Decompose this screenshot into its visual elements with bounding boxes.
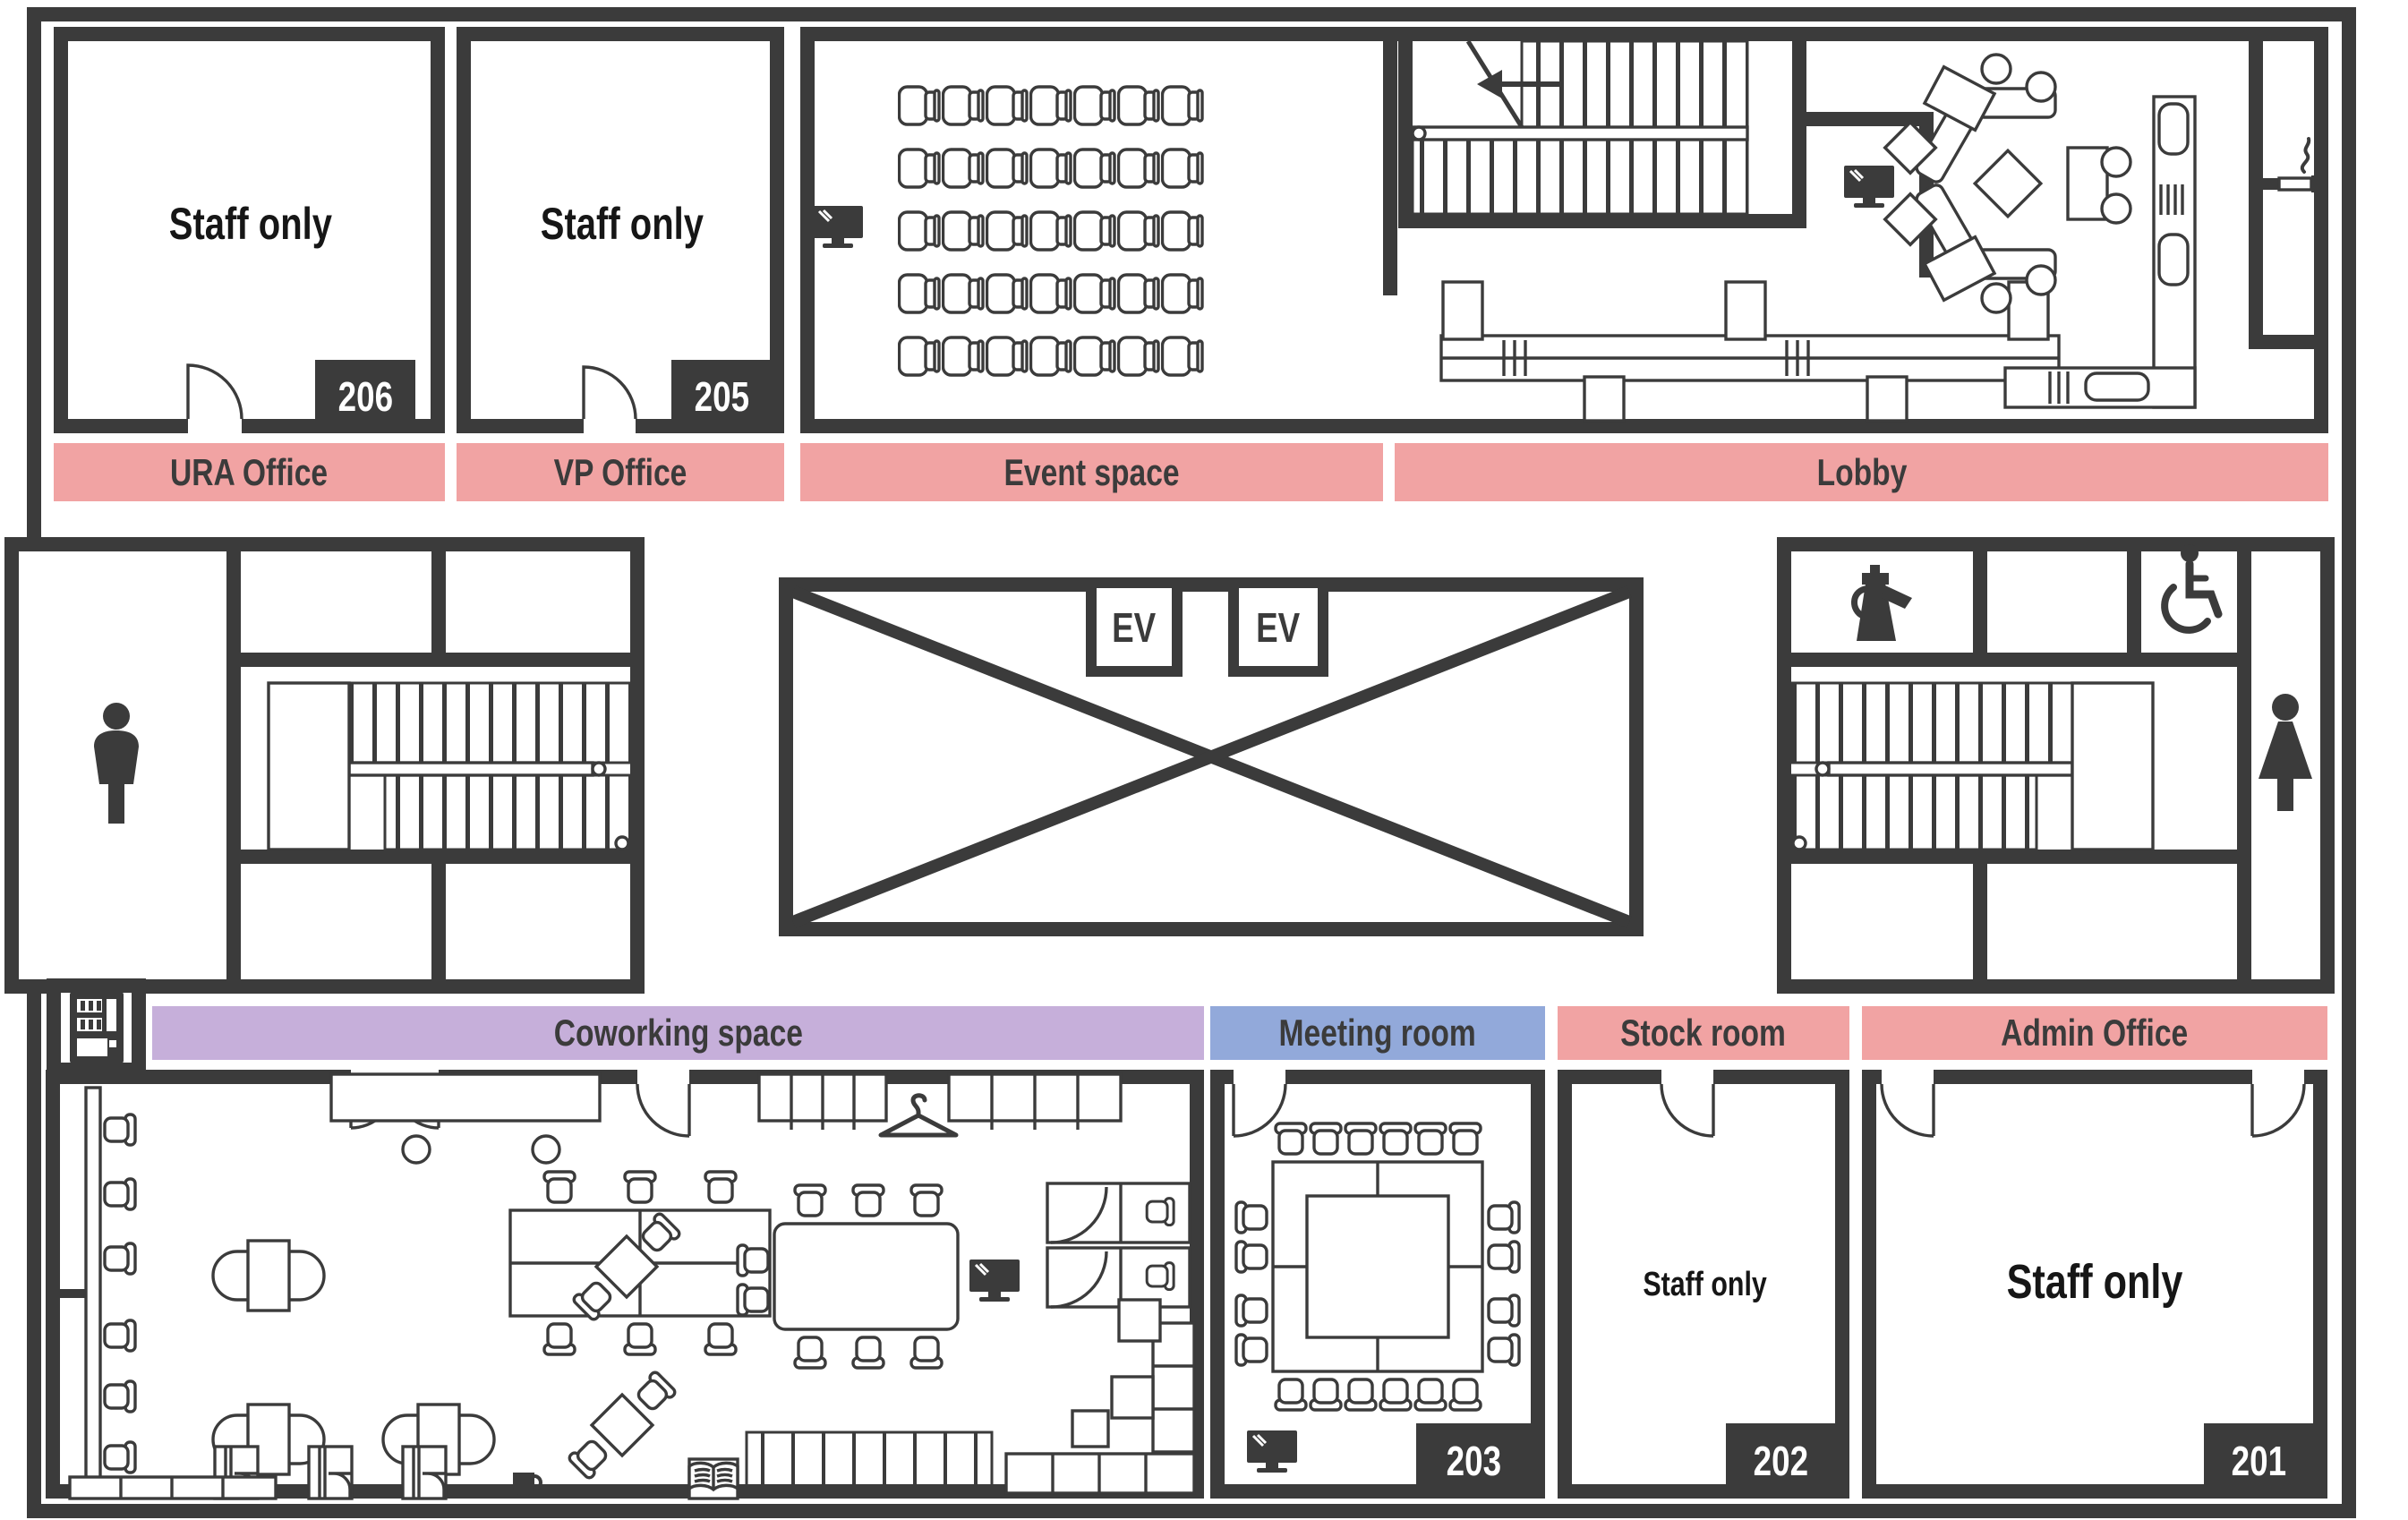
room-206-number-badge: 206 [315, 360, 415, 433]
zone-band-event-space: Event space [800, 443, 1383, 501]
floor-plan: URA Office VP Office Event space Lobby C… [0, 0, 2408, 1520]
room-201-label: Staff only [1889, 1244, 2301, 1319]
vending-machine-alcove [54, 986, 139, 1070]
zone-band-meeting-room: Meeting room [1210, 1006, 1545, 1060]
east-staircase [1791, 683, 2153, 850]
atrium-void [786, 583, 1636, 929]
meeting-room-table [1236, 1123, 1519, 1410]
room-202-number-badge: 202 [1726, 1423, 1835, 1499]
west-staircase [269, 683, 630, 850]
room-205-number-badge: 205 [671, 360, 772, 433]
book-icon [689, 1463, 738, 1490]
zone-band-vp-office: VP Office [457, 443, 784, 501]
elevator-2-label: EV [1234, 594, 1323, 661]
event-space-seating [898, 76, 1205, 389]
zone-band-coworking-space: Coworking space [152, 1006, 1204, 1060]
zone-band-stock-room: Stock room [1558, 1006, 1849, 1060]
room-206-label: Staff only [81, 188, 421, 260]
coworking-pair-table [213, 1241, 324, 1311]
vending-machine-icon [70, 992, 124, 1063]
room-205-label: Staff only [465, 188, 779, 260]
zone-band-admin-office: Admin Office [1862, 1006, 2327, 1060]
room-203-number-badge: 203 [1416, 1423, 1531, 1499]
elevator-1-label: EV [1091, 594, 1177, 661]
room-201-number-badge: 201 [2204, 1423, 2313, 1499]
zone-band-lobby: Lobby [1395, 443, 2328, 501]
zone-band-ura-office: URA Office [54, 443, 445, 501]
room-202-label: Staff only [1584, 1253, 1826, 1316]
